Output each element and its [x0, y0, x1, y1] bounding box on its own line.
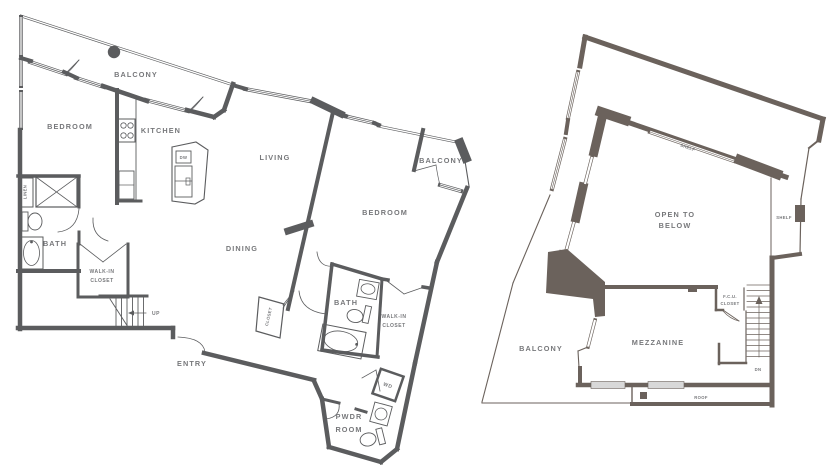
- mezzanine-walls: [578, 258, 772, 405]
- windows: [21, 17, 461, 191]
- dining-label: DINING: [226, 244, 258, 253]
- interior-walls: [18, 90, 429, 412]
- walk-in-right-label-1: WALK-IN: [382, 314, 407, 320]
- bedroom-left-label: BEDROOM: [47, 122, 93, 131]
- balcony-railing: [21, 16, 469, 186]
- mezzanine-label: MEZZANINE: [632, 338, 684, 347]
- open-to-below-label-1: OPEN TO: [655, 210, 695, 219]
- walk-in-left-label-1: WALK-IN: [90, 269, 115, 275]
- fcu-label-2: CLOSET: [720, 301, 739, 306]
- dn-label: DN: [755, 367, 762, 372]
- toilet-second-bath: [346, 306, 372, 324]
- balcony-top-label: BALCONY: [114, 70, 158, 79]
- pwdr-label-1: PWDR: [336, 412, 363, 421]
- roof-label: ROOF: [694, 395, 708, 400]
- right-plan: SHELF SHELF OPEN TO BELOW F.C.U. CLOSET …: [482, 37, 823, 405]
- pwdr-label-2: ROOM: [335, 425, 362, 434]
- shelf-right-label: SHELF: [776, 215, 792, 220]
- stair-arrow: [756, 296, 763, 304]
- balcony-column: [108, 46, 120, 58]
- bath-left-label: BATH: [43, 239, 67, 248]
- living-label: LIVING: [260, 153, 291, 162]
- left-plan-labels: BALCONY BEDROOM KITCHEN DW LIVING DINING…: [23, 70, 463, 434]
- bath-right-label: BATH: [334, 298, 358, 307]
- floor-plans-svg: BALCONY BEDROOM KITCHEN DW LIVING DINING…: [0, 0, 834, 465]
- stove: [118, 119, 135, 142]
- walk-in-right-label-2: CLOSET: [382, 323, 405, 329]
- toilet-main-bath: [22, 212, 42, 231]
- mezzanine-window-slab: [591, 382, 625, 389]
- dishwasher-label: DW: [180, 155, 188, 160]
- bedroom-right-label: BEDROOM: [362, 208, 408, 217]
- kitchen-island: [172, 142, 208, 204]
- sink-powder-room: [370, 402, 393, 426]
- floor-plan-image: BALCONY BEDROOM KITCHEN DW LIVING DINING…: [0, 0, 834, 465]
- shower: [36, 177, 77, 207]
- entry-label: ENTRY: [177, 359, 207, 368]
- linen-label: LINEN: [23, 185, 28, 199]
- sink-second-bath: [357, 279, 380, 299]
- up-label: UP: [152, 311, 160, 317]
- roof-column: [640, 392, 647, 399]
- left-plan: BALCONY BEDROOM KITCHEN DW LIVING DINING…: [18, 16, 469, 462]
- exterior-walls: [18, 58, 467, 462]
- mezzanine-left-jag: [578, 320, 595, 385]
- mezz-balcony-label: BALCONY: [519, 344, 563, 353]
- mezzanine-window-slab: [648, 382, 684, 389]
- wd-label: WD: [382, 382, 393, 391]
- kitchen-label: KITCHEN: [141, 126, 181, 135]
- tub-main-bath: [20, 237, 43, 269]
- balcony-right-label: BALCONY: [419, 156, 463, 165]
- walk-in-left-label-2: CLOSET: [90, 278, 113, 284]
- stairs-up: [110, 296, 146, 329]
- kitchen-counter: [119, 96, 136, 200]
- open-to-below-label-2: BELOW: [659, 221, 692, 230]
- closet-label: CLOSET: [264, 307, 273, 327]
- fcu-label-1: F.C.U.: [723, 294, 737, 299]
- dining-closet: [256, 291, 294, 338]
